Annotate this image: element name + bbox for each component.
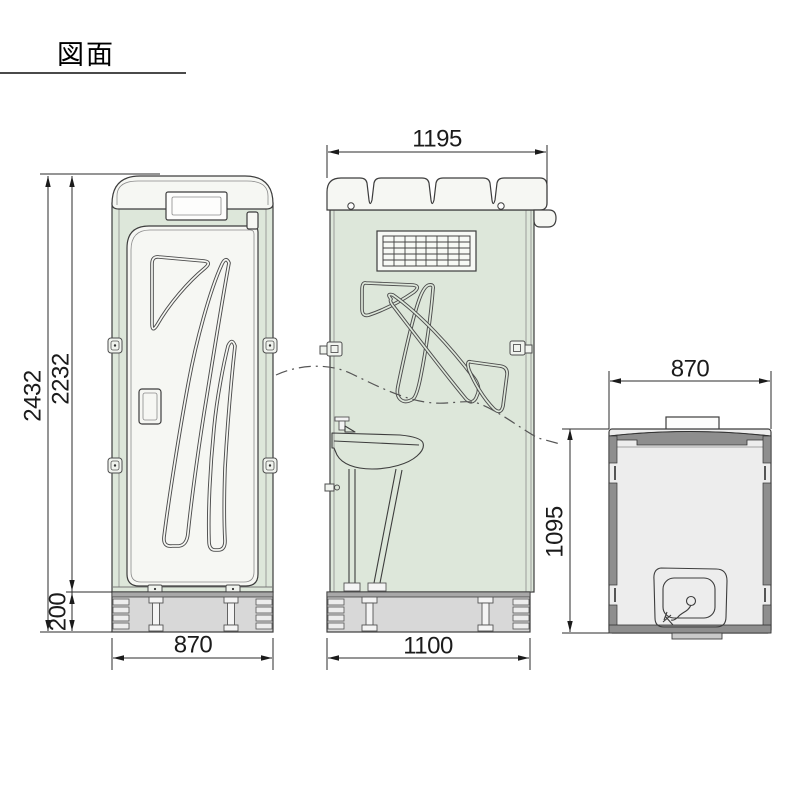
door-handle <box>139 389 161 424</box>
dim-top-depth: 1095 <box>542 506 569 558</box>
drawing-page: 図面 <box>0 0 800 800</box>
page-title: 図面 <box>57 33 115 72</box>
side-view <box>276 178 560 632</box>
technical-drawing: 2432 2232 200 870 1195 1100 870 1095 <box>0 0 800 800</box>
dim-front-total-height: 2432 <box>20 370 47 422</box>
front-window <box>166 192 227 220</box>
side-base <box>327 592 530 632</box>
door-latch <box>247 212 258 229</box>
dim-front-base-height: 200 <box>45 593 72 632</box>
dim-front-body-height: 2232 <box>48 353 75 405</box>
front-view <box>108 176 277 632</box>
plan-bottom-band <box>609 625 771 633</box>
front-base <box>112 592 273 632</box>
roof-vent-tab <box>666 417 719 430</box>
faucet-top <box>335 417 349 421</box>
top-view <box>609 417 771 639</box>
wall-tap <box>325 484 334 491</box>
title-underline <box>0 72 186 74</box>
plan-bottom-tab <box>672 633 722 639</box>
vent-grille <box>377 231 476 271</box>
dim-side-base-depth: 1100 <box>403 633 453 660</box>
dim-top-width: 870 <box>671 356 710 383</box>
dim-front-width: 870 <box>174 632 213 659</box>
front-door <box>127 212 258 586</box>
plan-outline <box>609 429 771 633</box>
roof-overhang <box>534 210 556 227</box>
dim-side-roof-depth: 1195 <box>412 126 462 153</box>
